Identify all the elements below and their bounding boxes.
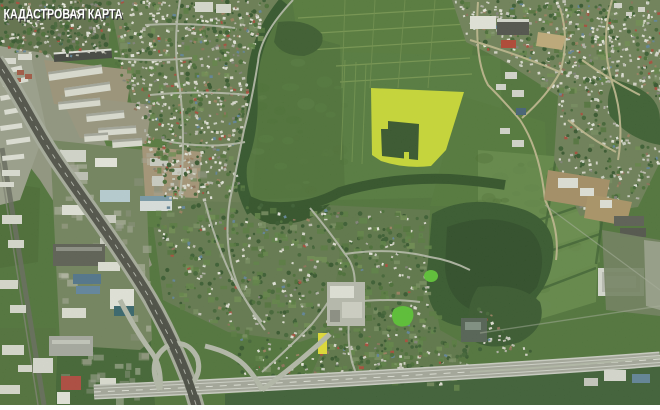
svg-text:КАДАСТРОВАЯ КАРТА: КАДАСТРОВАЯ КАРТА — [4, 7, 123, 22]
